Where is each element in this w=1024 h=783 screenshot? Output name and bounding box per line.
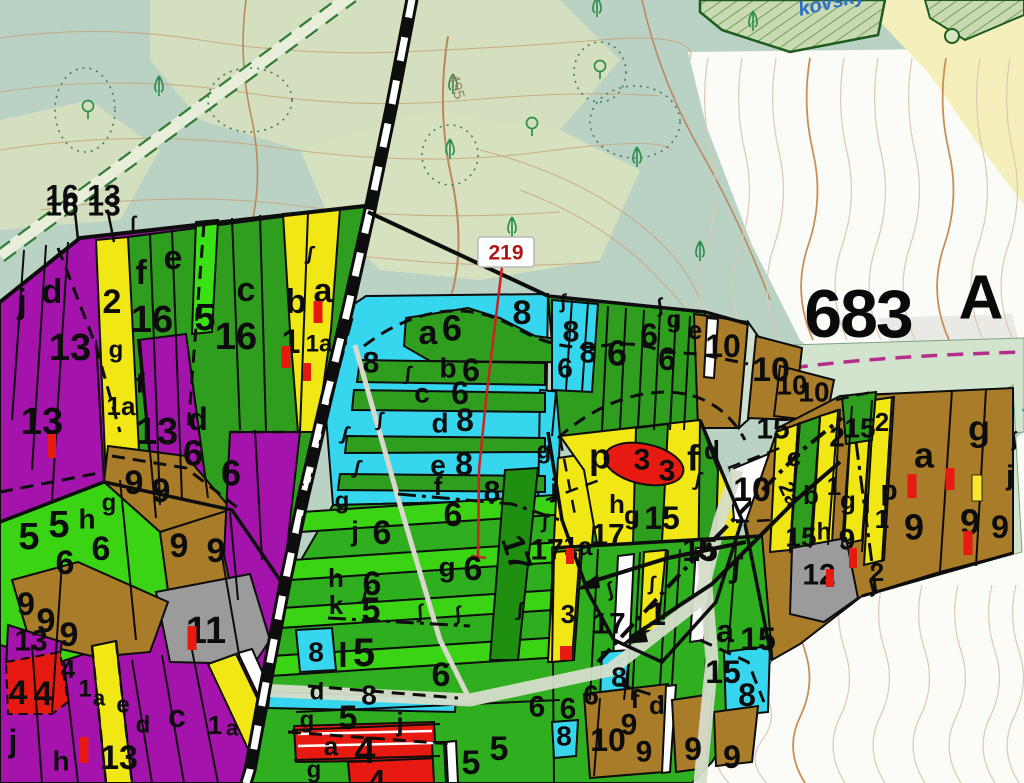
parcel-label: c [168, 698, 186, 734]
parcel-label: 8 [456, 402, 474, 438]
parcel-label: 1a [107, 391, 136, 421]
parcel-label: 8 [513, 294, 532, 332]
parcel-label: 9 [170, 527, 189, 565]
parcel-label: d [310, 679, 325, 706]
parcel-label: 6 [640, 317, 658, 353]
parcel-label: 9 [152, 472, 171, 510]
parcel-label: 15 [740, 621, 776, 657]
parcel-label: 15 [785, 522, 816, 553]
parcel-label: 13 [14, 625, 47, 658]
parcel-label: d [42, 273, 63, 311]
parcel-label: 8 [308, 637, 324, 668]
parcel-label: 6 [432, 656, 451, 694]
parcel-label: b [286, 283, 307, 321]
red-marker [964, 531, 973, 555]
parcel-label: e [164, 239, 183, 277]
stand-letter-A: A [959, 264, 1003, 333]
parcel-label: 10 [705, 328, 741, 364]
parcel-label: c [414, 378, 430, 409]
parcel-label: g [109, 337, 124, 364]
parcel-label: g [968, 408, 990, 449]
parcel-label: 1 [78, 676, 91, 703]
parcel-label: 8 [455, 446, 473, 482]
red-marker [560, 646, 572, 660]
parcel-label: 1 [208, 710, 222, 740]
parcel-label: h [328, 563, 344, 593]
parcel-label: h [609, 489, 625, 519]
parcel-label: 3 [659, 455, 676, 488]
parcel-label: c [237, 271, 256, 309]
parcel-label: f [687, 438, 700, 479]
stand-number-683: 683 [804, 276, 912, 352]
parcel-label: 10 [733, 471, 771, 509]
parcel-label: 2 [870, 557, 884, 587]
parcel-label: 4 [34, 675, 53, 713]
parcel-label: a [716, 613, 734, 649]
parcel-label: a [324, 731, 339, 761]
parcel-label: 13 [100, 739, 138, 777]
parcel-label: 6 [529, 691, 546, 724]
parcel-label: 8 [738, 677, 756, 713]
parcel-label: 13 [21, 401, 63, 443]
parcel-label: 8 [363, 347, 380, 380]
parcel-label: 4 [369, 765, 386, 783]
parcel-label: 15 [844, 413, 875, 444]
parcel-label: 17 [592, 608, 625, 641]
parcel-label: a [419, 314, 439, 352]
parcel-label: 6 [373, 514, 392, 552]
parcel-label: 2 [829, 422, 845, 453]
parcel-label: 13 [136, 411, 178, 453]
parcel-label: j [8, 723, 18, 759]
parcel-label: g [624, 500, 640, 530]
parcel-label: g [537, 438, 552, 465]
parcel-label: g [438, 552, 455, 583]
parcel-label: 8 [580, 337, 597, 370]
parcel-label: 5 [194, 297, 215, 339]
parcel-label: j [549, 473, 557, 503]
parcel-label: 6 [583, 680, 599, 711]
parcel-label: 8 [611, 662, 627, 693]
red-marker [566, 548, 574, 564]
parcel-label: 5 [353, 631, 375, 675]
parcel-label: f [135, 254, 147, 292]
red-marker [188, 626, 197, 650]
parcel-label: 8 [556, 721, 572, 752]
red-marker [48, 434, 56, 458]
parcel-label: 9 [125, 464, 144, 502]
parcel-label: 6 [56, 544, 75, 582]
parcel-label: 9 [723, 739, 741, 775]
parcel-label: 6 [221, 453, 241, 494]
parcel-label: a [93, 686, 106, 711]
parcel-label: 9 [207, 532, 226, 570]
forestry-map-canvas[interactable]: kovský 219 683 A 16 13 495 ∫∫∫∫∫∫∫∫∫∫∫∫∫… [0, 0, 1024, 783]
parcel-label: k [329, 590, 344, 620]
red-marker [314, 301, 323, 323]
parcel-label: g [840, 485, 856, 515]
parcel-label: g [307, 757, 322, 783]
parcel-label: 6 [557, 353, 573, 384]
parcel-label: 6 [464, 550, 483, 588]
parcel-label: 6 [658, 341, 676, 377]
red-marker [303, 363, 311, 381]
parcel-label: 16 [131, 299, 173, 341]
parcel-label: 5 [490, 730, 509, 768]
parcel-label: 8 [563, 316, 580, 349]
parcel-label: 1 [648, 596, 666, 632]
parcel-label: d [649, 690, 665, 720]
parcel-label: 5 [462, 744, 481, 782]
parcel-label: f [434, 471, 443, 501]
parcel-label: 15 [756, 413, 789, 446]
parcel-label: d [704, 435, 720, 465]
parcel-label: 15 [644, 500, 680, 536]
parcel-label: a [226, 716, 239, 741]
parcel-label: 6 [183, 433, 203, 474]
parcel [446, 741, 458, 783]
parcel-label: 17 [591, 519, 624, 552]
parcel-label: j [16, 283, 26, 321]
parcel-label: 1a [306, 331, 333, 358]
red-marker [282, 346, 291, 368]
parcel [432, 742, 446, 783]
red-marker [849, 548, 857, 568]
parcel-label: 15 [705, 654, 741, 690]
red-marker [826, 569, 834, 587]
parcel-label: 9 [17, 586, 35, 622]
parcel-label: 13 [87, 190, 120, 223]
parcel-label: 3 [561, 599, 575, 629]
parcel-label: p [880, 475, 897, 506]
parcel-label: g [300, 707, 315, 734]
forestry-map[interactable]: kovský 219 683 A 16 13 495 ∫∫∫∫∫∫∫∫∫∫∫∫∫… [0, 0, 1024, 783]
parcel-label: f [135, 368, 145, 399]
yellow-marker [972, 475, 982, 501]
parcel-label: 5 [698, 531, 716, 567]
parcel-label: h [817, 519, 832, 546]
parcel-label: 4 [61, 654, 76, 684]
parcel-label: p [589, 436, 611, 477]
parcel-label: e [688, 315, 702, 345]
parcel-label: 17 [530, 534, 563, 567]
parcel-label: 9 [636, 736, 653, 769]
parcel-label: 16 [45, 190, 78, 223]
parcel-label: 5 [48, 504, 69, 546]
red-marker [946, 468, 955, 490]
parcel-label: 6 [607, 333, 627, 374]
red-marker [908, 474, 917, 498]
parcel-label: l [338, 637, 347, 675]
parcel-label: 6 [92, 530, 111, 568]
parcel-label: c [787, 442, 801, 472]
parcel-label: 5 [362, 591, 381, 629]
parcel-label: 1 [875, 504, 889, 534]
parcel-label: h [52, 746, 69, 777]
parcel-label: 9 [60, 616, 79, 654]
parcel-label: 8 [361, 680, 377, 711]
red-marker [80, 737, 89, 763]
waypoint-number: 219 [488, 242, 523, 265]
parcel-label: d [431, 408, 448, 439]
parcel-label: 4 [9, 674, 28, 712]
parcel-label: 10 [798, 377, 829, 408]
parcel-label: 9 [904, 507, 924, 548]
parcel-label: 2 [103, 283, 122, 321]
parcel-label: j [350, 516, 359, 547]
parcel-label: j [1005, 460, 1014, 491]
parcel-label: 5 [18, 516, 39, 558]
parcel-label: 6 [444, 496, 463, 534]
parcel-label: l [863, 489, 870, 519]
parcel-label: 9 [991, 509, 1009, 545]
parcel-label: a [914, 435, 935, 476]
parcel-label: e [116, 692, 129, 719]
parcel-label: 13 [49, 327, 91, 369]
parcel-label: 9 [684, 731, 702, 767]
parcel-label: g [667, 307, 682, 334]
parcel-label: j [395, 707, 403, 737]
parcel-label: g [335, 488, 350, 515]
parcel-label: 3 [634, 444, 651, 477]
parcel-label: 16 [215, 316, 257, 358]
parcel-label: 6 [442, 308, 462, 349]
parcel-label: 8 [484, 476, 501, 509]
parcel-label: g [102, 490, 117, 517]
parcel-label: b [803, 480, 819, 510]
map-circle-symbol [945, 29, 959, 43]
parcel-label: d [136, 712, 151, 739]
parcel-label: 2 [875, 407, 889, 437]
